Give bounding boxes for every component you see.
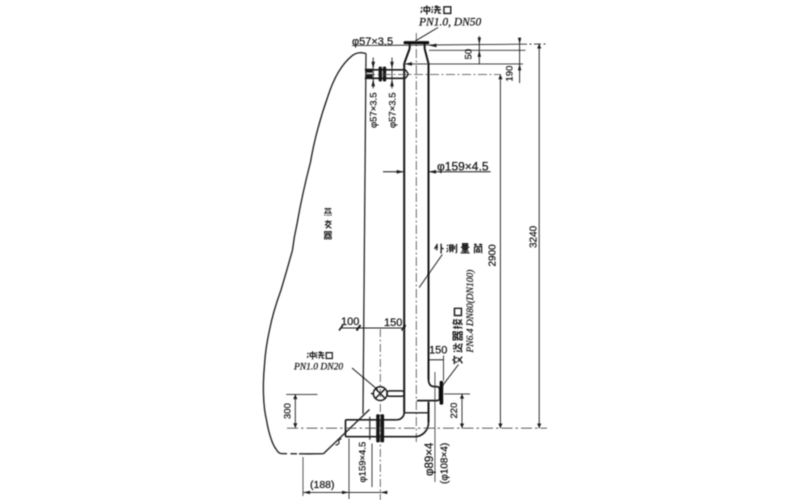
svg-text:PN1.0 DN20: PN1.0 DN20 <box>293 363 343 373</box>
svg-text:300: 300 <box>283 403 294 419</box>
svg-text:(188): (188) <box>310 479 335 491</box>
svg-text:φ57×3.5: φ57×3.5 <box>369 93 380 128</box>
svg-text:100: 100 <box>341 316 359 328</box>
svg-text:φ89×4: φ89×4 <box>424 442 436 476</box>
svg-text:150: 150 <box>429 345 447 357</box>
svg-text:(φ108×4): (φ108×4) <box>440 443 451 484</box>
svg-text:PN1.0, DN50: PN1.0, DN50 <box>418 17 482 29</box>
svg-text:φ159×4.5: φ159×4.5 <box>358 442 369 483</box>
svg-text:220: 220 <box>449 403 460 419</box>
svg-text:150: 150 <box>384 317 402 329</box>
svg-text:190: 190 <box>505 66 516 82</box>
svg-text:φ57×3.5: φ57×3.5 <box>388 93 399 128</box>
svg-text:φ159×4.5: φ159×4.5 <box>437 160 489 174</box>
svg-text:2900: 2900 <box>488 244 499 267</box>
svg-text:PN6.4 DN80(DN100): PN6.4 DN80(DN100) <box>465 270 476 354</box>
svg-text:50: 50 <box>464 49 475 60</box>
svg-text:3240: 3240 <box>529 225 540 248</box>
svg-text:φ57×3.5: φ57×3.5 <box>352 36 393 48</box>
